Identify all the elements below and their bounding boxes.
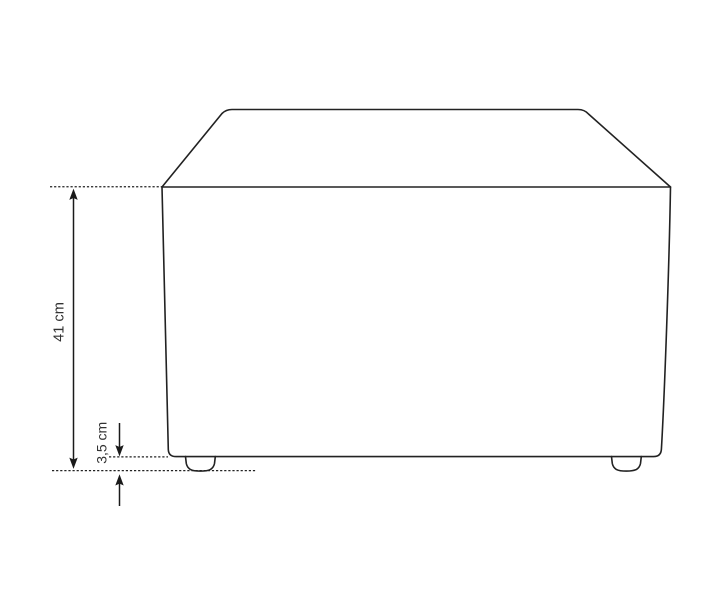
svg-text:41 cm: 41 cm bbox=[52, 302, 68, 342]
svg-text:3,5 cm: 3,5 cm bbox=[94, 422, 110, 464]
